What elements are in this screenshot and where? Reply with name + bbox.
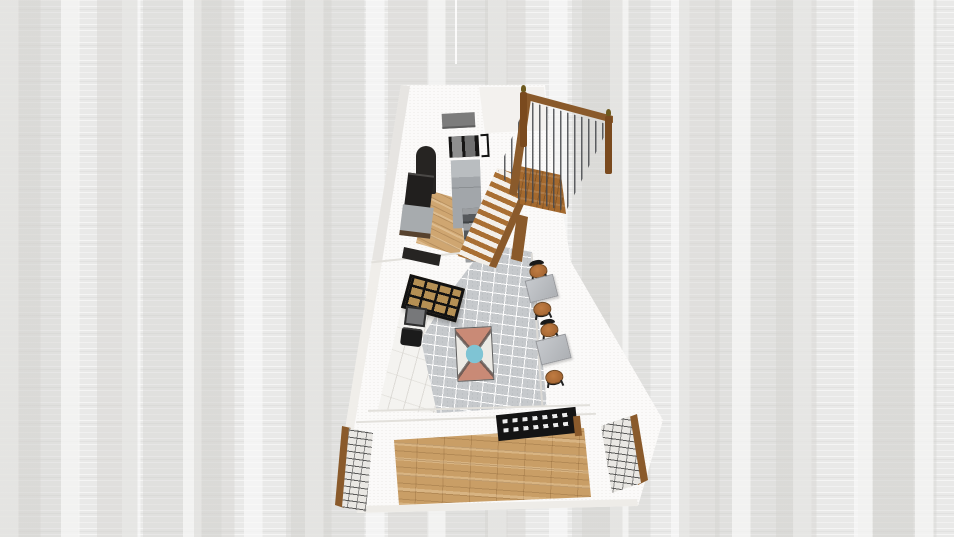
wall-art-panel[interactable] [442, 112, 476, 129]
armchair[interactable] [400, 327, 423, 347]
dining-chair-2[interactable] [532, 298, 552, 316]
newel-post-right [605, 116, 612, 174]
wall-oven[interactable] [448, 135, 479, 158]
chair-seat [544, 369, 564, 385]
newel-finial-icon [606, 109, 611, 116]
newel-post-left [520, 92, 527, 147]
gray-base-cabinet[interactable] [399, 204, 434, 239]
chair-seat [532, 301, 552, 317]
floorplan-canvas [0, 0, 954, 537]
console-table[interactable] [404, 306, 427, 327]
oven-side-bracket[interactable] [480, 134, 489, 157]
newel-finial-icon [521, 85, 526, 92]
bench-slats [503, 421, 571, 432]
dining-chair-4[interactable] [544, 366, 564, 384]
dining-chair-3[interactable] [539, 319, 560, 338]
area-rug[interactable] [455, 326, 495, 382]
backdrop-seam [455, 0, 457, 64]
